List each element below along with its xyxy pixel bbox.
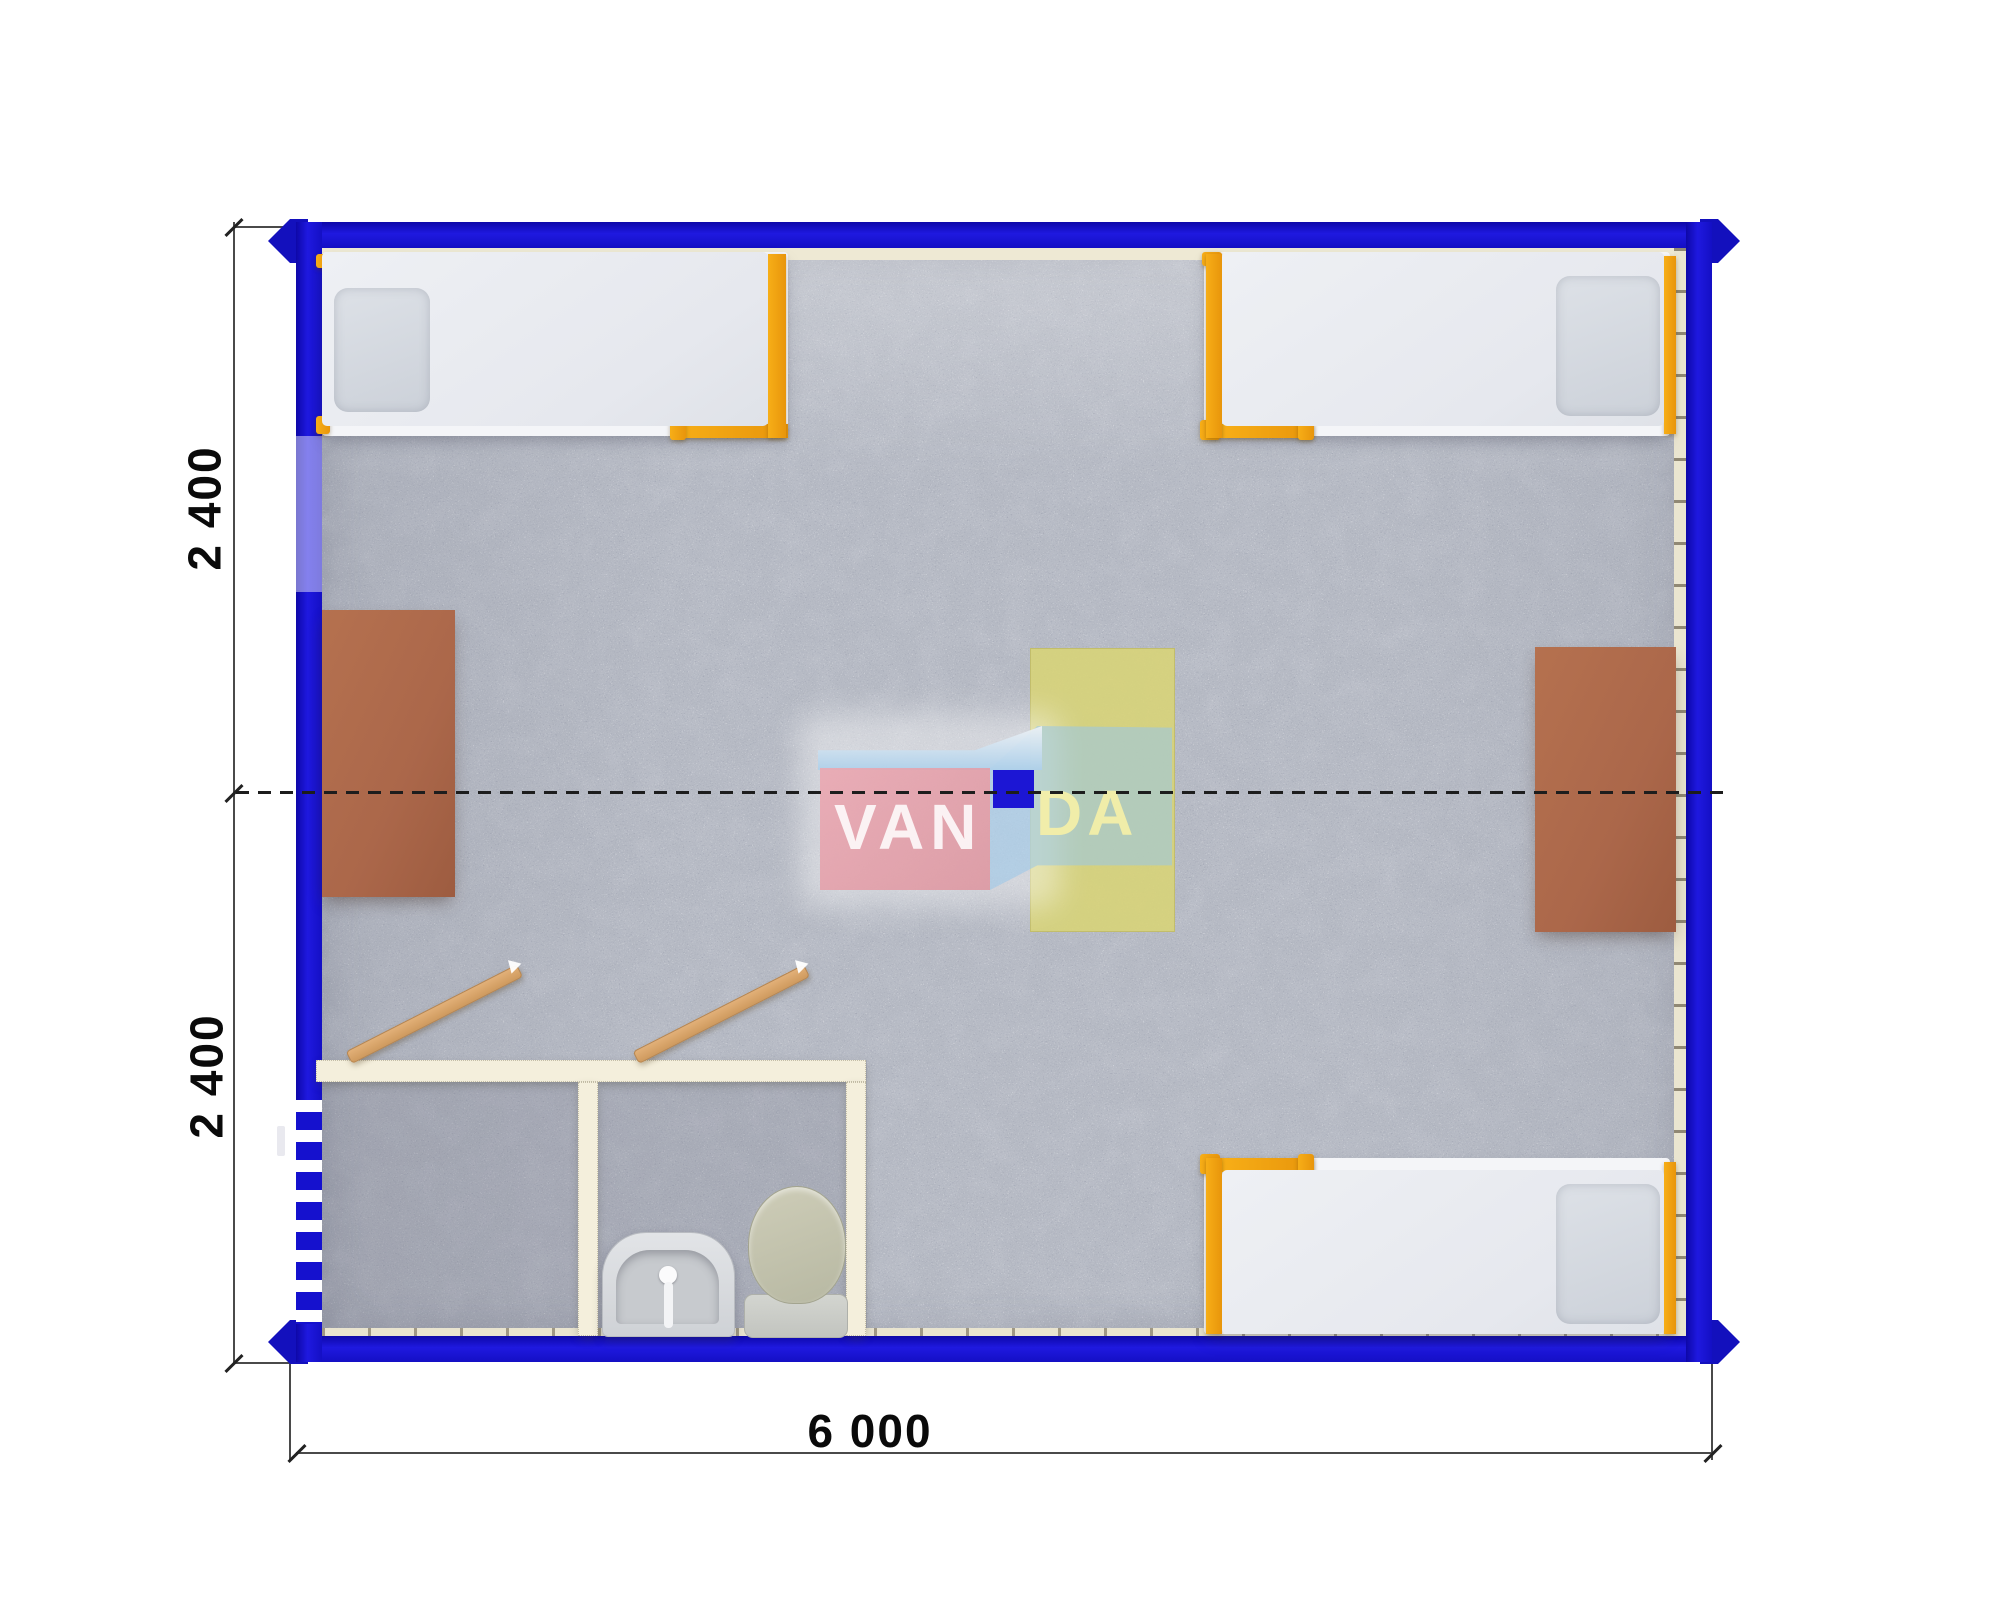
bed-frame-bar [1206, 254, 1222, 438]
window-left-wall [296, 436, 322, 592]
module-joint-dashed-line [236, 791, 1728, 794]
bathroom-wall-top [316, 1060, 866, 1082]
bed-pillow [1556, 276, 1660, 416]
dim-label-width: 6 000 [770, 1404, 970, 1458]
bathroom-wall-middle [578, 1082, 598, 1336]
extension-line-bottom-r [1711, 1363, 1713, 1460]
desk-right-wall [1535, 647, 1676, 932]
dim-label-height-upper-wrap: 2 400 [110, 418, 300, 598]
bed-frame-bar [768, 254, 786, 438]
extension-line-bottom-l [289, 1363, 291, 1460]
logo-text-van: VAN [834, 790, 982, 864]
extension-line-bottom-left [233, 1362, 296, 1364]
dim-label-height-lower: 2 400 [180, 1013, 234, 1138]
entrance-door-left-wall [296, 1100, 322, 1324]
logo-blue-square [993, 770, 1034, 808]
bed-frame-bar-wall-side [1664, 1162, 1676, 1334]
desk-left-wall [322, 610, 455, 897]
wall-bottom [296, 1336, 1712, 1362]
bathroom-wall-right [846, 1082, 866, 1336]
floor-plan-canvas: 2 400 2 400 6 000 [0, 0, 2000, 1622]
logo-text-da: DA [1036, 776, 1138, 850]
basin-faucet-stem [664, 1282, 673, 1328]
entrance-door-handle [277, 1126, 285, 1156]
bed-frame-bar [1206, 1158, 1222, 1334]
toilet-lid [748, 1186, 846, 1304]
dim-label-height-lower-wrap: 2 400 [112, 986, 302, 1166]
bed-pillow [334, 288, 430, 412]
wall-top [296, 222, 1712, 248]
bed-pillow [1556, 1184, 1660, 1324]
bed-frame-bar-wall-side [1664, 256, 1676, 434]
dim-label-height-upper: 2 400 [178, 445, 232, 570]
dimension-line-bottom [296, 1452, 1712, 1454]
